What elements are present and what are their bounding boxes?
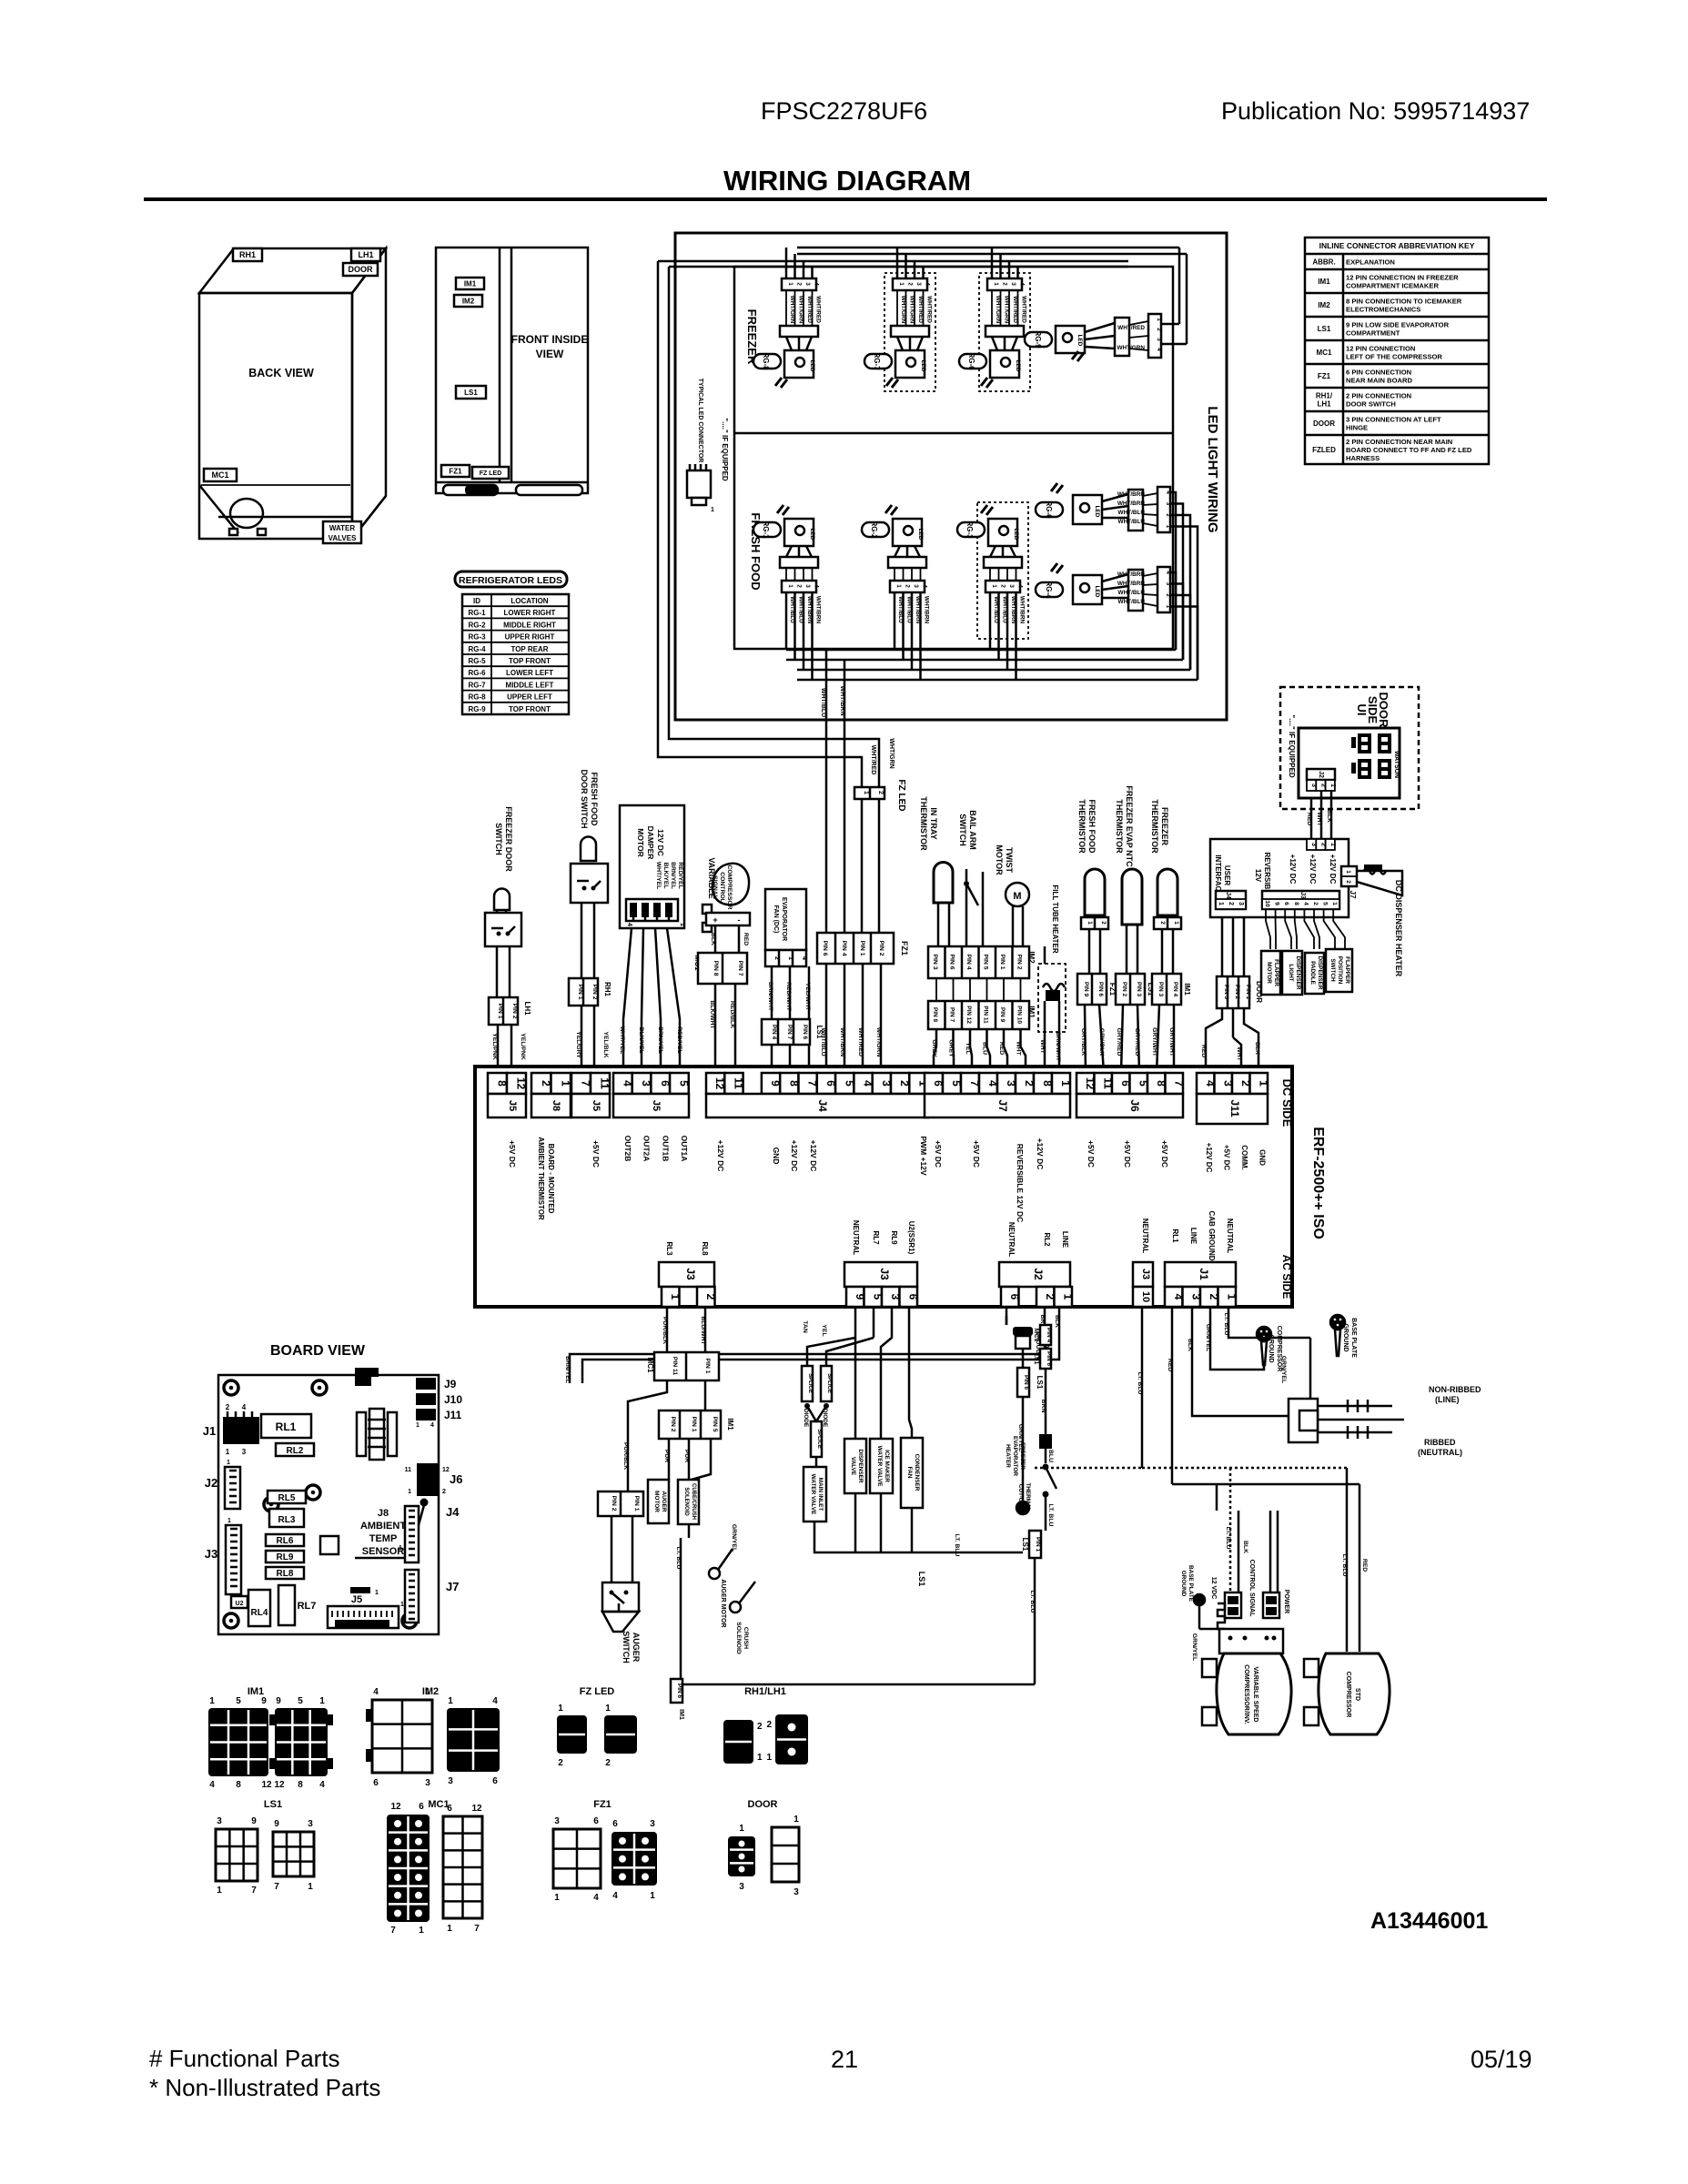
svg-text:4: 4 [430, 1422, 434, 1429]
svg-text:CONDENSER: CONDENSER [914, 1454, 920, 1491]
svg-text:PIN 6: PIN 6 [1023, 1375, 1029, 1390]
svg-text:PIN 2: PIN 2 [611, 1496, 617, 1512]
svg-text:GRN/YEL: GRN/YEL [1191, 1633, 1198, 1661]
svg-text:2: 2 [796, 584, 803, 588]
svg-text:11: 11 [405, 1467, 412, 1473]
svg-text:+5V DC: +5V DC [1087, 1140, 1096, 1168]
svg-text:A13446001: A13446001 [1370, 1908, 1488, 1934]
svg-text:6 PIN CONNECTION: 6 PIN CONNECTION [1346, 369, 1411, 377]
svg-text:1: 1 [793, 1815, 799, 1825]
svg-text:BLU: BLU [1047, 1450, 1054, 1462]
svg-text:PIN 5: PIN 5 [983, 955, 989, 970]
svg-text:RG-4: RG-4 [468, 645, 486, 653]
svg-text:COMPRESSOR: COMPRESSOR [1345, 1672, 1351, 1718]
svg-text:GREY: GREY [931, 1039, 937, 1057]
svg-text:+5V DC: +5V DC [591, 1140, 601, 1168]
svg-text:LEFT OF THE COMPRESSOR: LEFT OF THE COMPRESSOR [1346, 353, 1442, 361]
svg-text:MOTOR: MOTOR [653, 1491, 660, 1512]
svg-text:4: 4 [373, 1687, 379, 1697]
svg-text:PIN 9: PIN 9 [1083, 982, 1089, 997]
svg-text:WHT/BRN: WHT/BRN [839, 685, 845, 715]
svg-text:1: 1 [558, 1704, 563, 1714]
svg-text:WHT/RED: WHT/RED [857, 1027, 864, 1057]
svg-text:WIRING DIAGRAM: WIRING DIAGRAM [723, 165, 971, 197]
svg-text:3: 3 [217, 1816, 222, 1826]
svg-text:J5: J5 [651, 1100, 662, 1111]
svg-text:4: 4 [209, 1780, 215, 1790]
svg-text:MC1: MC1 [1033, 1329, 1039, 1342]
svg-text:1: 1 [447, 1924, 452, 1934]
svg-text:1: 1 [1173, 921, 1179, 925]
svg-text:GND: GND [772, 1148, 781, 1165]
svg-text:1: 1 [787, 282, 793, 286]
svg-text:FZLED: FZLED [1312, 446, 1336, 454]
svg-text:4: 4 [925, 282, 931, 286]
svg-text:YEL/PNK: YEL/PNK [520, 1033, 526, 1060]
svg-text:COMPRESSOR/INV.: COMPRESSOR/INV. [1243, 1664, 1249, 1724]
svg-text:LS1: LS1 [1036, 1376, 1044, 1390]
svg-text:3: 3 [650, 1819, 655, 1829]
svg-text:THERMISTOR: THERMISTOR [1077, 799, 1087, 854]
svg-text:BLK: BLK [710, 933, 716, 945]
svg-text:* Non-Illustrated Parts: * Non-Illustrated Parts [149, 2074, 380, 2101]
svg-text:RG-2: RG-2 [870, 521, 878, 539]
svg-text:PUR: PUR [683, 1450, 690, 1462]
svg-text:+5V DC: +5V DC [1123, 1140, 1132, 1168]
svg-text:SPLICE: SPLICE [807, 1373, 813, 1393]
svg-text:3 PIN CONNECTION AT LEFT: 3 PIN CONNECTION AT LEFT [1346, 416, 1441, 424]
svg-text:3: 3 [1156, 338, 1162, 341]
svg-text:PADDLE: PADDLE [1309, 961, 1316, 986]
svg-text:BLK: BLK [1054, 1315, 1060, 1328]
svg-text:2: 2 [1000, 584, 1006, 588]
svg-text:PIN 1: PIN 1 [1035, 1537, 1041, 1552]
svg-text:LS1: LS1 [1021, 1538, 1029, 1552]
svg-text:6: 6 [906, 1294, 919, 1300]
svg-text:PIN 8: PIN 8 [713, 961, 719, 976]
svg-text:LS1: LS1 [917, 1572, 926, 1587]
svg-text:6: 6 [419, 1802, 424, 1812]
svg-text:WHT/RED: WHT/RED [1117, 325, 1145, 331]
svg-text:4: 4 [1302, 902, 1309, 905]
svg-text:NON-RIBBED: NON-RIBBED [1429, 1385, 1481, 1394]
svg-text:1: 1 [1059, 1080, 1072, 1087]
svg-text:9: 9 [261, 1696, 267, 1706]
svg-text:4: 4 [1019, 282, 1026, 286]
svg-text:4: 4 [814, 282, 820, 286]
svg-text:TEMP: TEMP [369, 1533, 398, 1544]
svg-text:PIN 4: PIN 4 [1172, 982, 1178, 997]
svg-text:LOCATION: LOCATION [510, 597, 548, 605]
svg-text:RH1/LH1: RH1/LH1 [744, 1686, 786, 1697]
svg-text:J5: J5 [507, 1100, 518, 1111]
svg-text:RG-1: RG-1 [762, 521, 770, 539]
svg-text:WHT/BLU: WHT/BLU [1118, 590, 1146, 596]
svg-text:5: 5 [236, 1696, 241, 1706]
svg-text:SPLICE: SPLICE [826, 1373, 832, 1393]
svg-text:4: 4 [242, 1403, 247, 1411]
svg-text:J9: J9 [444, 1378, 457, 1390]
svg-text:PUR/BLK: PUR/BLK [662, 1317, 668, 1344]
svg-text:MC1: MC1 [428, 1799, 449, 1810]
svg-text:2: 2 [1345, 880, 1351, 884]
svg-text:UI: UI [1355, 704, 1369, 716]
svg-text:1: 1 [993, 282, 999, 286]
svg-text:VARIABLE SPEED: VARIABLE SPEED [1252, 1667, 1258, 1723]
svg-text:1: 1 [1225, 1294, 1238, 1300]
svg-text:5: 5 [1322, 902, 1329, 905]
svg-text:BLK/WHT: BLK/WHT [709, 1000, 715, 1029]
svg-text:7: 7 [1172, 1080, 1185, 1087]
svg-text:BOARD VIEW: BOARD VIEW [270, 1343, 366, 1359]
svg-text:1: 1 [1165, 605, 1171, 609]
svg-text:1: 1 [898, 282, 905, 286]
svg-text:WATER: WATER [329, 524, 356, 532]
svg-text:USER: USER [1223, 865, 1231, 885]
svg-text:NEAR MAIN BOARD: NEAR MAIN BOARD [1346, 377, 1412, 385]
svg-text:MIDDLE RIGHT: MIDDLE RIGHT [503, 621, 556, 629]
svg-text:WHT: WHT [1039, 1039, 1046, 1054]
svg-text:RG-4: RG-4 [1045, 581, 1053, 599]
svg-text:FILL TUBE HEATER: FILL TUBE HEATER [1051, 885, 1059, 953]
svg-text:IM2: IM2 [462, 297, 475, 305]
svg-text:J7: J7 [446, 1580, 459, 1593]
svg-text:GREY: GREY [948, 1039, 955, 1057]
svg-text:RG-9: RG-9 [1034, 330, 1042, 349]
svg-text:6: 6 [1008, 1294, 1021, 1300]
svg-text:LED: LED [1013, 529, 1019, 541]
svg-text:THERMISTOR: THERMISTOR [1115, 799, 1124, 854]
svg-text:GRY/RED: GRY/RED [1116, 1028, 1122, 1057]
svg-text:GROUND: GROUND [1342, 1323, 1349, 1351]
svg-text:2: 2 [773, 956, 780, 960]
svg-text:RIBBED: RIBBED [1424, 1438, 1456, 1447]
svg-text:GRY/WHT: GRY/WHT [1168, 1027, 1175, 1057]
svg-text:CONTROL SIGNAL: CONTROL SIGNAL [1248, 1560, 1255, 1618]
svg-text:12: 12 [261, 1780, 272, 1790]
svg-text:HINGE: HINGE [1346, 424, 1368, 432]
svg-text:J1: J1 [1198, 1268, 1210, 1280]
svg-text:THERMAL: THERMAL [1025, 1482, 1031, 1511]
svg-text:RH1: RH1 [603, 982, 612, 997]
svg-text:PIN 6: PIN 6 [949, 955, 955, 970]
svg-text:PUR: PUR [663, 1450, 670, 1462]
svg-text:PIN 4: PIN 4 [1046, 1328, 1052, 1342]
svg-text:OUT1B: OUT1B [661, 1136, 670, 1162]
svg-text:RG-5: RG-5 [468, 657, 486, 665]
svg-text:RG-6: RG-6 [1045, 500, 1053, 519]
svg-text:RED/YEL: RED/YEL [676, 1026, 682, 1053]
svg-text:PIN 2: PIN 2 [670, 1417, 676, 1432]
svg-text:AUGER: AUGER [632, 1633, 641, 1663]
svg-text:LH1: LH1 [523, 1001, 531, 1016]
svg-text:2: 2 [1228, 902, 1234, 905]
svg-text:9: 9 [274, 1819, 279, 1829]
svg-text:OUT1A: OUT1A [680, 1136, 689, 1162]
svg-text:1: 1 [766, 1753, 772, 1763]
svg-text:TOP REAR: TOP REAR [510, 645, 548, 653]
svg-text:COMM.: COMM. [1240, 1145, 1248, 1170]
svg-text:PIN 1: PIN 1 [691, 1417, 697, 1432]
svg-text:VALVE: VALVE [850, 1457, 856, 1476]
svg-text:12V DC: 12V DC [656, 829, 665, 856]
svg-text:1: 1 [448, 1696, 453, 1706]
svg-text:LINE: LINE [1061, 1231, 1069, 1249]
svg-text:PIN 2: PIN 2 [1234, 985, 1240, 999]
svg-text:12: 12 [390, 1802, 401, 1812]
svg-text:1: 1 [375, 1590, 379, 1596]
svg-text:IN TRAY: IN TRAY [929, 807, 938, 839]
svg-text:# Functional Parts: # Functional Parts [149, 2045, 340, 2072]
svg-text:RG-3: RG-3 [468, 633, 486, 642]
svg-text:EVAPORATOR: EVAPORATOR [1012, 1436, 1018, 1476]
svg-text:12: 12 [442, 1467, 450, 1473]
svg-text:J7: J7 [1349, 891, 1357, 899]
svg-text:7: 7 [390, 1926, 396, 1936]
svg-text:IM1: IM1 [464, 279, 477, 288]
svg-text:RED: RED [1306, 813, 1312, 825]
svg-text:4: 4 [814, 584, 820, 588]
svg-text:6: 6 [612, 1819, 618, 1829]
svg-text:PIN 6: PIN 6 [822, 941, 828, 956]
svg-text:3: 3 [1165, 582, 1171, 586]
svg-text:9: 9 [1274, 902, 1280, 905]
svg-text:POSITION: POSITION [1337, 956, 1343, 985]
svg-text:Publication No: 5995714937: Publication No: 5995714937 [1221, 97, 1530, 125]
svg-text:MAIN INLET: MAIN INLET [817, 1478, 824, 1512]
svg-text:1: 1 [425, 1687, 430, 1697]
svg-text:J3: J3 [1299, 892, 1306, 899]
svg-text:1: 1 [308, 1882, 313, 1892]
svg-text:LINE: LINE [1189, 1228, 1198, 1245]
svg-text:BRN/WHT: BRN/WHT [1055, 1032, 1061, 1062]
svg-text:1: 1 [1218, 902, 1224, 905]
svg-text:FZ1: FZ1 [1318, 372, 1331, 380]
svg-text:4: 4 [612, 1891, 618, 1901]
svg-text:DC DISPENSER HEATER: DC DISPENSER HEATER [1394, 880, 1403, 977]
svg-text:12 PIN CONNECTION: 12 PIN CONNECTION [1346, 345, 1415, 353]
svg-text:PIN 6: PIN 6 [1046, 1351, 1052, 1366]
svg-text:4: 4 [319, 1780, 325, 1790]
svg-text:BLK/YEL: BLK/YEL [662, 862, 669, 888]
svg-text:RH1/: RH1/ [1316, 392, 1333, 400]
svg-text:2: 2 [905, 584, 911, 588]
svg-text:1: 1 [227, 1518, 231, 1524]
svg-text:PIN 1: PIN 1 [633, 1496, 640, 1512]
svg-text:LED: LED [809, 529, 815, 541]
svg-text:(LINE): (LINE) [1435, 1395, 1460, 1404]
svg-text:BLK: BLK [1242, 1541, 1248, 1553]
svg-text:MC1: MC1 [1317, 349, 1332, 357]
svg-text:3: 3 [739, 1882, 744, 1892]
svg-text:GRN/YEL: GRN/YEL [1205, 1324, 1211, 1351]
svg-text:LED: LED [1076, 335, 1083, 347]
svg-text:1: 1 [895, 584, 902, 588]
svg-text:+12V DC: +12V DC [1289, 854, 1297, 885]
svg-text:RG-1: RG-1 [468, 609, 486, 617]
svg-text:9: 9 [276, 1696, 281, 1706]
svg-text:ICE MAKER: ICE MAKER [884, 1450, 890, 1482]
svg-text:RED: RED [1200, 1045, 1207, 1057]
svg-text:GRY/WHT: GRY/WHT [1151, 1027, 1157, 1057]
svg-text:RL6: RL6 [277, 1536, 294, 1546]
svg-text:RG-8: RG-8 [468, 693, 486, 702]
svg-text:WHT/GRN: WHT/GRN [875, 1027, 882, 1057]
svg-text:PUR/BLK: PUR/BLK [622, 1442, 629, 1470]
svg-text:3: 3 [913, 584, 919, 588]
svg-text:1: 1 [1331, 902, 1338, 905]
svg-text:TAN: TAN [802, 1320, 808, 1333]
svg-text:WHT/BRN: WHT/BRN [924, 596, 930, 624]
svg-text:LED: LED [809, 360, 815, 372]
svg-text:AUGER: AUGER [661, 1491, 667, 1512]
svg-text:RED/WHT: RED/WHT [785, 982, 792, 1012]
svg-text:DIODE: DIODE [803, 1409, 809, 1428]
svg-text:PIN 6: PIN 6 [1097, 982, 1104, 997]
svg-text:5: 5 [677, 1080, 690, 1087]
svg-text:2: 2 [1100, 921, 1107, 925]
svg-text:LT. BLU: LT. BLU [1047, 1504, 1054, 1527]
svg-text:+5V DC: +5V DC [508, 1140, 517, 1168]
svg-text:RL7: RL7 [872, 1230, 880, 1245]
svg-text:J6: J6 [450, 1472, 462, 1486]
svg-text:WHT/BLU: WHT/BLU [820, 688, 826, 717]
svg-text:FLAPPER: FLAPPER [1273, 959, 1279, 986]
svg-text:+12V DC: +12V DC [790, 1140, 799, 1172]
svg-text:1: 1 [217, 1886, 222, 1896]
svg-text:9: 9 [251, 1816, 257, 1826]
svg-text:VIEW: VIEW [536, 348, 564, 360]
svg-text:1: 1 [1165, 525, 1171, 529]
svg-text:+12V DC: +12V DC [1329, 854, 1337, 885]
svg-text:YEL/WHT: YEL/WHT [804, 983, 811, 1011]
svg-text:3: 3 [1008, 584, 1015, 588]
svg-text:RL9: RL9 [890, 1230, 898, 1245]
svg-text:3: 3 [804, 282, 811, 286]
svg-text:DOOR: DOOR [1313, 420, 1335, 428]
svg-text:+: + [713, 915, 717, 925]
svg-text:1: 1 [650, 1891, 655, 1901]
svg-text:PIN 1: PIN 1 [1245, 985, 1251, 999]
svg-text:RL1: RL1 [1171, 1228, 1179, 1243]
svg-text:1: 1 [1257, 1080, 1269, 1087]
svg-text:PIN 7: PIN 7 [737, 961, 743, 976]
svg-text:M: M [1013, 891, 1021, 902]
svg-text:2: 2 [605, 1758, 611, 1768]
svg-text:+5V DC: +5V DC [972, 1140, 981, 1168]
svg-text:3: 3 [308, 1819, 313, 1829]
svg-text:RED/YEL: RED/YEL [677, 862, 683, 888]
svg-text:LED: LED [1094, 586, 1100, 598]
svg-text:1: 1 [416, 1422, 419, 1429]
svg-text:SOLENOID: SOLENOID [683, 1487, 689, 1516]
svg-text:2: 2 [757, 1722, 763, 1732]
svg-text:PIN 2: PIN 2 [591, 985, 598, 1000]
svg-text:WHT/GRN: WHT/GRN [1117, 345, 1145, 351]
svg-text:BLK: BLK [1187, 1339, 1193, 1351]
svg-text:1: 1 [739, 1824, 744, 1834]
svg-text:2 PIN CONNECTION NEAR MAIN: 2 PIN CONNECTION NEAR MAIN [1346, 438, 1452, 446]
svg-text:OUT2A: OUT2A [642, 1136, 652, 1162]
svg-text:J1: J1 [203, 1424, 216, 1438]
svg-text:12V: 12V [1254, 869, 1262, 883]
svg-text:2: 2 [1312, 902, 1319, 905]
svg-text:PIN 12: PIN 12 [965, 1006, 972, 1024]
svg-text:YEL: YEL [965, 1042, 971, 1054]
svg-text:6: 6 [1283, 902, 1289, 905]
svg-text:12 VDC: 12 VDC [1210, 1577, 1217, 1600]
svg-text:3: 3 [1010, 282, 1016, 286]
svg-text:WHT/BRN: WHT/BRN [839, 1027, 845, 1057]
svg-text:PIN 4: PIN 4 [965, 955, 972, 970]
svg-text:DOOR SWITCH: DOOR SWITCH [580, 770, 589, 829]
svg-text:LT. BLU: LT. BLU [1341, 1554, 1348, 1577]
svg-text:DOOR SWITCH: DOOR SWITCH [1346, 400, 1396, 409]
svg-text:1: 1 [400, 1602, 404, 1608]
svg-text:RG-8: RG-8 [762, 352, 770, 370]
svg-text:1: 1 [605, 1704, 611, 1714]
svg-text:GROUND: GROUND [1180, 1571, 1187, 1597]
svg-text:J7: J7 [996, 1099, 1009, 1112]
svg-text:RG-6: RG-6 [967, 352, 975, 370]
svg-text:YEL: YEL [821, 1324, 827, 1336]
svg-text:ERF-2500++ ISO: ERF-2500++ ISO [1310, 1127, 1326, 1239]
svg-text:LED: LED [917, 529, 924, 541]
svg-text:WHT/RED: WHT/RED [815, 296, 822, 323]
svg-text:3: 3 [425, 1778, 430, 1788]
svg-text:2: 2 [704, 1294, 717, 1300]
svg-text:6: 6 [593, 1816, 599, 1826]
svg-text:PIN 8: PIN 8 [932, 1007, 938, 1023]
svg-text:GRY/BLK: GRY/BLK [1080, 1028, 1087, 1056]
svg-text:EVAPORATOR: EVAPORATOR [781, 897, 787, 941]
svg-text:J4: J4 [1225, 892, 1231, 899]
svg-text:LT. BLU: LT. BLU [954, 1534, 960, 1557]
svg-text:J10: J10 [444, 1393, 462, 1406]
svg-text:1: 1 [399, 1545, 402, 1552]
svg-text:2: 2 [877, 791, 884, 794]
svg-text:HARNESS: HARNESS [1346, 454, 1380, 462]
svg-text:U2: U2 [236, 1601, 244, 1607]
svg-text:OUT2B: OUT2B [623, 1136, 632, 1162]
svg-text:RL1: RL1 [276, 1421, 297, 1433]
svg-text:2: 2 [558, 1758, 563, 1768]
svg-text:TYPICAL LED CONNECTOR: TYPICAL LED CONNECTOR [697, 379, 703, 463]
svg-text:WHT/BRN: WHT/BRN [1117, 571, 1146, 578]
svg-text:3: 3 [1165, 502, 1171, 506]
svg-text:REVERSIBLE 12V DC: REVERSIBLE 12V DC [1016, 1144, 1025, 1222]
svg-text:YEL/GRY: YEL/GRY [575, 1031, 581, 1058]
svg-text:RL3: RL3 [278, 1515, 296, 1525]
svg-text:WHT/YEL: WHT/YEL [655, 862, 662, 890]
svg-text:8: 8 [298, 1780, 303, 1790]
svg-text:6: 6 [373, 1778, 379, 1788]
svg-text:SWITCH: SWITCH [958, 814, 967, 846]
svg-text:TWIST: TWIST [1005, 847, 1014, 873]
svg-text:1: 1 [757, 1753, 763, 1763]
svg-text:1: 1 [863, 791, 869, 794]
svg-text:4: 4 [626, 923, 632, 926]
svg-text:MOTOR: MOTOR [995, 844, 1004, 875]
svg-text:IM1: IM1 [1183, 983, 1191, 996]
svg-text:+12V DC: +12V DC [1205, 1143, 1213, 1173]
svg-text:RL5: RL5 [278, 1493, 296, 1503]
svg-text:BASE PLATE: BASE PLATE [1350, 1318, 1357, 1358]
svg-text:REFRIGERATOR LEDS: REFRIGERATOR LEDS [459, 575, 562, 586]
svg-text:3: 3 [793, 1887, 799, 1897]
svg-text:WHT: WHT [1016, 1041, 1022, 1056]
svg-text:WHT/BLU: WHT/BLU [1118, 519, 1146, 525]
